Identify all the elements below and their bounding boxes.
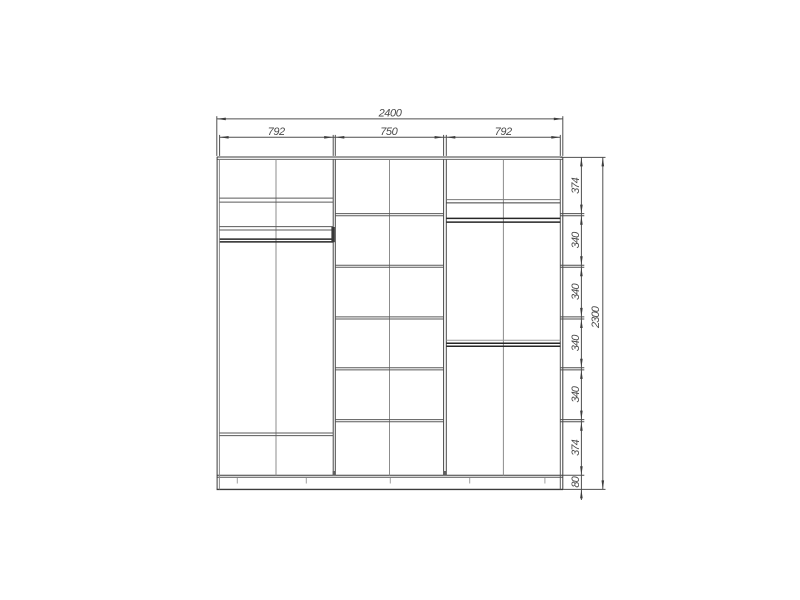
- svg-text:340: 340: [570, 385, 582, 402]
- svg-text:80: 80: [570, 475, 582, 487]
- svg-text:750: 750: [380, 126, 398, 138]
- svg-text:340: 340: [570, 231, 582, 248]
- svg-text:792: 792: [268, 126, 285, 138]
- svg-text:340: 340: [570, 282, 582, 299]
- svg-text:340: 340: [570, 334, 582, 351]
- svg-text:374: 374: [570, 177, 582, 193]
- svg-text:374: 374: [570, 439, 582, 455]
- svg-text:792: 792: [495, 126, 512, 138]
- svg-text:2300: 2300: [590, 305, 602, 329]
- svg-text:2400: 2400: [378, 107, 403, 119]
